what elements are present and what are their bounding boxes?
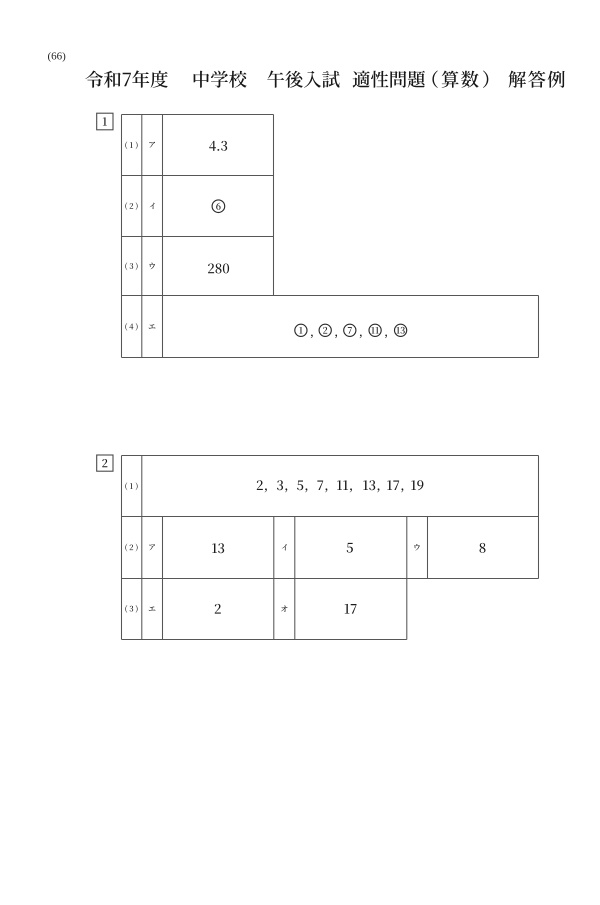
svg-text:(66): (66) [48,51,67,63]
